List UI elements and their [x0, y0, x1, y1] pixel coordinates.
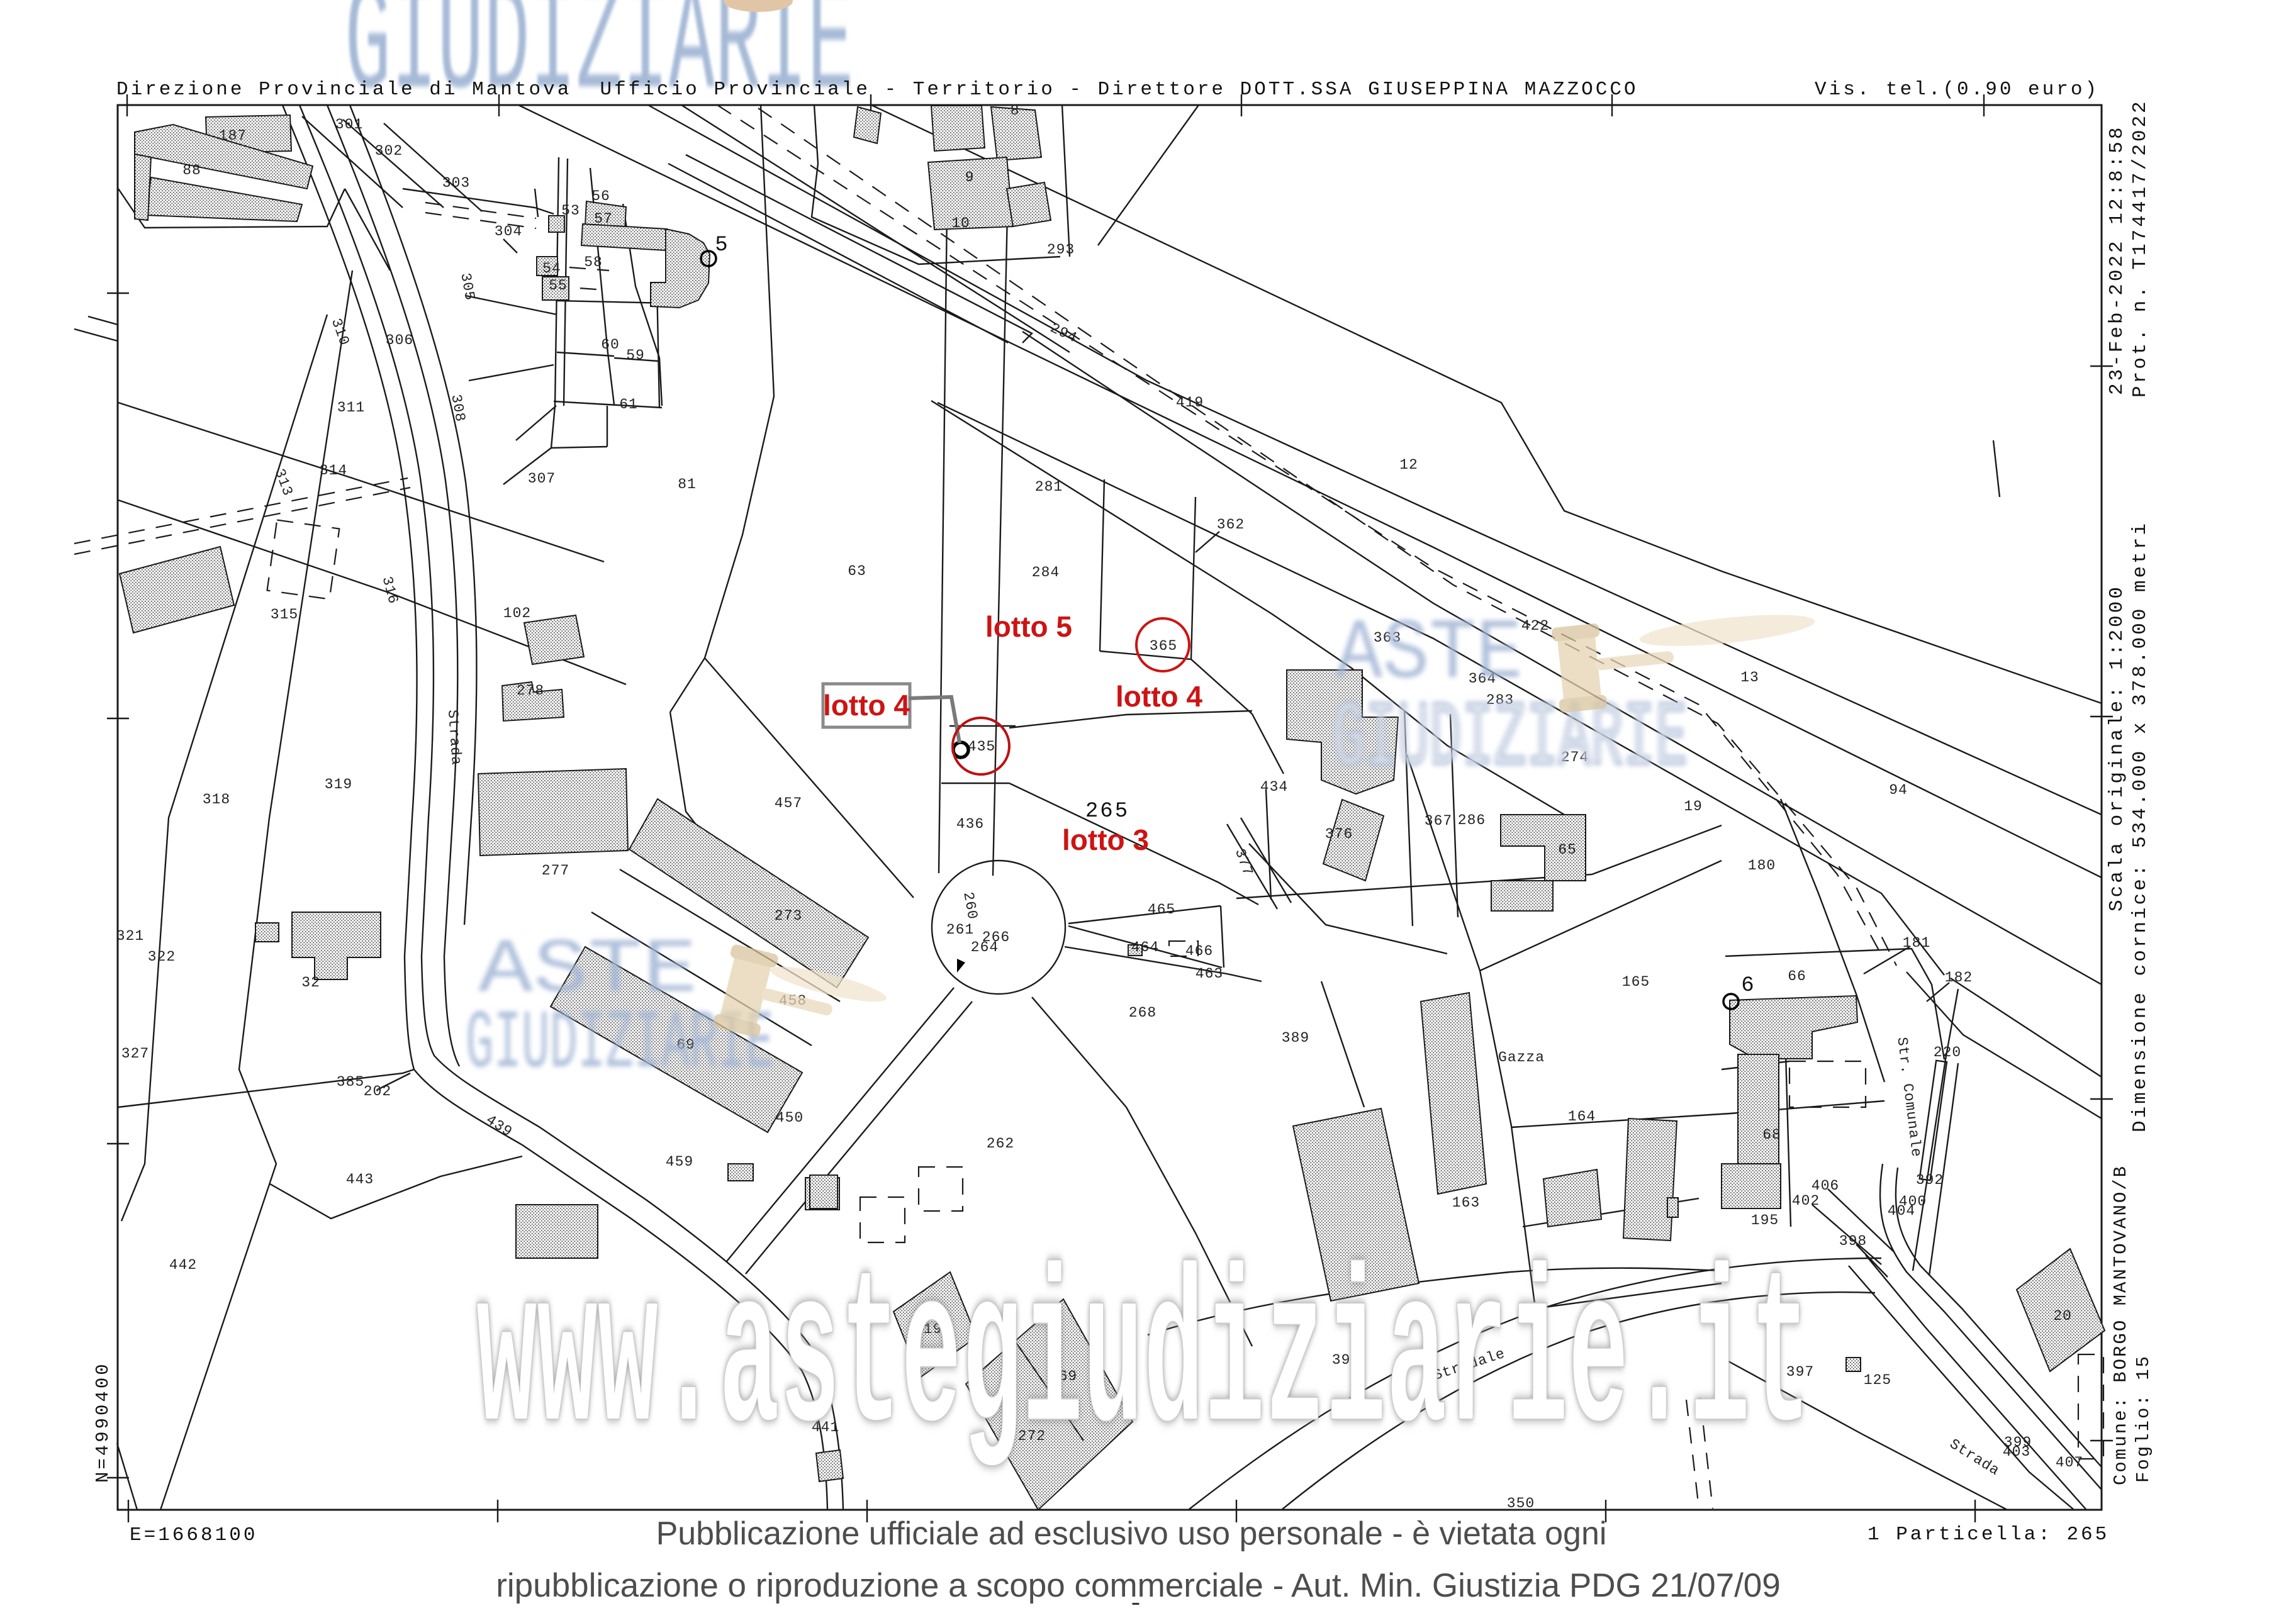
svg-text:442: 442	[169, 1257, 197, 1273]
svg-text:19: 19	[1684, 798, 1703, 815]
svg-text:-: -	[1128, 1590, 1143, 1618]
svg-text:13: 13	[1740, 669, 1759, 686]
svg-text:58: 58	[584, 254, 603, 271]
svg-text:306: 306	[386, 332, 413, 349]
svg-text:318: 318	[203, 791, 230, 808]
svg-text:286: 286	[1458, 812, 1486, 829]
svg-text:385: 385	[337, 1074, 364, 1090]
svg-text:lotto 4: lotto 4	[1116, 680, 1202, 713]
svg-text:434: 434	[1260, 779, 1288, 795]
svg-text:463: 463	[1196, 966, 1223, 982]
svg-text:450: 450	[776, 1110, 804, 1126]
svg-text:220: 220	[1934, 1044, 1961, 1061]
svg-text:55: 55	[549, 277, 568, 294]
svg-text:10: 10	[951, 215, 970, 232]
svg-text:435: 435	[968, 739, 995, 755]
svg-text:419: 419	[1176, 394, 1204, 411]
svg-text:65: 65	[1558, 842, 1577, 858]
svg-text:322: 322	[148, 949, 176, 965]
svg-text:20: 20	[2053, 1308, 2072, 1324]
svg-text:202: 202	[364, 1083, 391, 1100]
svg-text:www.astegiudiziarie.it: www.astegiudiziarie.it	[476, 1236, 1811, 1485]
svg-text:464: 464	[1131, 939, 1159, 956]
svg-text:195: 195	[1751, 1212, 1779, 1229]
svg-text:9: 9	[965, 169, 975, 186]
svg-text:54: 54	[542, 260, 561, 277]
svg-text:466: 466	[1185, 943, 1213, 959]
svg-text:Foglio: 15: Foglio: 15	[2133, 1354, 2154, 1483]
svg-text:277: 277	[542, 862, 569, 879]
svg-text:lotto 3: lotto 3	[1062, 823, 1149, 856]
svg-text:307: 307	[528, 471, 556, 487]
svg-text:12: 12	[1399, 457, 1418, 473]
svg-text:362: 362	[1217, 516, 1245, 533]
svg-text:Direzione Provinciale di Manto: Direzione Provinciale di Mantova Ufficio…	[116, 79, 1638, 101]
svg-text:181: 181	[1903, 935, 1930, 951]
svg-text:E=1668100: E=1668100	[130, 1524, 257, 1546]
svg-text:8: 8	[1011, 103, 1020, 119]
svg-text:68: 68	[1762, 1127, 1781, 1143]
svg-text:102: 102	[503, 605, 531, 622]
svg-text:443: 443	[346, 1171, 374, 1188]
svg-text:261: 261	[946, 922, 974, 938]
svg-text:389: 389	[1282, 1030, 1309, 1046]
svg-text:422: 422	[1521, 618, 1549, 634]
svg-text:459: 459	[666, 1154, 693, 1170]
svg-text:5: 5	[715, 233, 729, 257]
svg-text:303: 303	[442, 175, 470, 191]
svg-text:88: 88	[182, 162, 201, 179]
svg-text:59: 59	[626, 347, 645, 364]
svg-text:81: 81	[678, 476, 697, 493]
svg-text:407: 407	[2056, 1454, 2083, 1471]
svg-text:273: 273	[775, 908, 802, 924]
svg-text:304: 304	[495, 223, 522, 240]
svg-text:60: 60	[601, 337, 620, 353]
svg-text:N=4990400: N=4990400	[92, 1361, 113, 1483]
svg-text:180: 180	[1748, 857, 1776, 874]
svg-text:187: 187	[219, 128, 247, 144]
svg-text:GIUDIZIARIE: GIUDIZIARIE	[1333, 687, 1688, 791]
svg-text:311: 311	[337, 399, 365, 416]
svg-text:392: 392	[1916, 1172, 1944, 1188]
svg-text:265: 265	[1085, 800, 1129, 823]
svg-text:23-Feb-2022 12:8:58: 23-Feb-2022 12:8:58	[2106, 125, 2128, 395]
svg-text:406: 406	[1812, 1178, 1839, 1194]
svg-text:262: 262	[987, 1135, 1014, 1152]
svg-text:53: 53	[561, 203, 580, 219]
svg-text:398: 398	[1839, 1233, 1867, 1249]
svg-text:281: 281	[1035, 479, 1063, 495]
svg-text:404: 404	[1888, 1203, 1915, 1219]
svg-text:367: 367	[1425, 813, 1452, 829]
svg-text:293: 293	[1047, 242, 1075, 258]
svg-text:94: 94	[1889, 782, 1908, 798]
svg-text:lotto 4: lotto 4	[823, 689, 910, 722]
svg-text:GIUDIZIARIE: GIUDIZIARIE	[345, 0, 854, 133]
svg-text:436: 436	[956, 816, 984, 832]
svg-text:56: 56	[591, 188, 610, 204]
svg-text:465: 465	[1148, 901, 1175, 918]
svg-text:32: 32	[301, 974, 320, 991]
svg-text:315: 315	[271, 606, 298, 623]
svg-text:327: 327	[121, 1046, 149, 1062]
svg-text:lotto 5: lotto 5	[985, 610, 1072, 643]
svg-text:66: 66	[1788, 968, 1806, 985]
svg-text:125: 125	[1864, 1372, 1891, 1388]
svg-text:302: 302	[375, 143, 403, 159]
svg-text:264: 264	[971, 939, 999, 956]
svg-text:Dimensione cornice: 534.000 x: Dimensione cornice: 534.000 x 378.000 me…	[2129, 521, 2151, 1132]
svg-text:314: 314	[320, 462, 347, 479]
svg-text:284: 284	[1032, 564, 1060, 581]
svg-text:6: 6	[1741, 974, 1756, 998]
svg-text:Pubblicazione ufficiale ad esc: Pubblicazione ufficiale ad esclusivo uso…	[656, 1515, 1607, 1552]
svg-text:350: 350	[1507, 1495, 1535, 1512]
svg-text:163: 163	[1452, 1195, 1480, 1211]
svg-text:Comune: BORGO MANTOVANO/B: Comune: BORGO MANTOVANO/B	[2110, 1164, 2131, 1485]
svg-text:319: 319	[325, 776, 352, 793]
svg-text:365: 365	[1150, 638, 1177, 654]
svg-text:164: 164	[1568, 1108, 1596, 1125]
svg-text:402: 402	[1792, 1193, 1820, 1209]
svg-text:1 Particella: 265: 1 Particella: 265	[1868, 1524, 2109, 1546]
svg-text:63: 63	[848, 563, 866, 579]
svg-text:Vis. tel.(0.90 euro): Vis. tel.(0.90 euro)	[1815, 79, 2099, 101]
svg-text:Prot. n. T174417/2022: Prot. n. T174417/2022	[2129, 99, 2151, 398]
svg-text:Scala originale: 1:2000: Scala originale: 1:2000	[2106, 584, 2128, 912]
svg-text:403: 403	[2003, 1444, 2030, 1460]
svg-text:268: 268	[1129, 1005, 1156, 1021]
svg-text:376: 376	[1325, 826, 1353, 842]
svg-text:57: 57	[594, 211, 613, 227]
svg-text:278: 278	[517, 683, 544, 699]
svg-text:61: 61	[619, 396, 638, 413]
svg-text:321: 321	[116, 928, 144, 944]
svg-text:182: 182	[1945, 969, 1973, 986]
svg-text:457: 457	[775, 795, 802, 812]
svg-text:Gazza: Gazza	[1498, 1049, 1545, 1066]
svg-text:165: 165	[1622, 974, 1650, 990]
svg-text:301: 301	[335, 116, 363, 133]
